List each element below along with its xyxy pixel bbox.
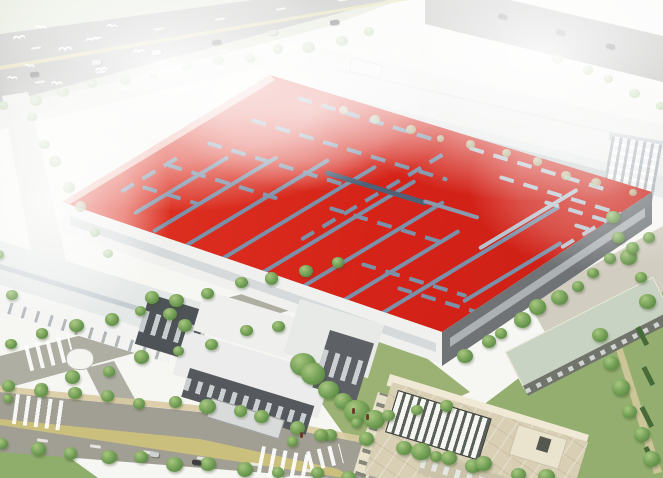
atmosphere-layer [0, 0, 663, 478]
haze-top-left [0, 0, 430, 210]
haze-top-right [300, 0, 663, 200]
haze-left [0, 70, 170, 330]
haze-top-band [0, 0, 663, 130]
haze-right-mid [470, 100, 663, 270]
aerial-rendering [0, 0, 663, 478]
haze-apex [170, 30, 450, 190]
